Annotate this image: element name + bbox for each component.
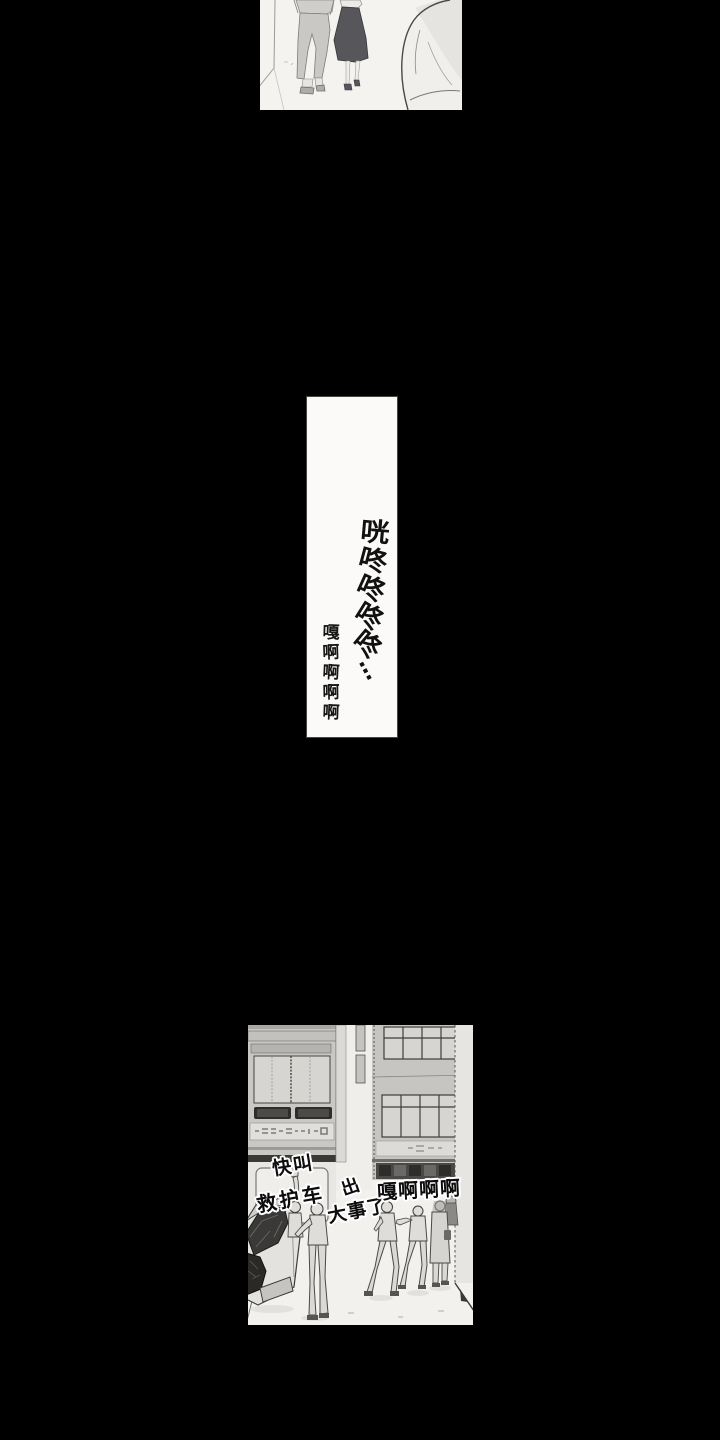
window-grid-upper <box>384 1027 460 1059</box>
scream-char: 啊 <box>316 662 345 683</box>
panel-sfx-crash: 咣 咚 咚 咚 咚 … 嘎 啊 啊 啊 啊 <box>306 396 398 738</box>
manga-reader-page[interactable]: 咣 咚 咚 咚 咚 … 嘎 啊 啊 啊 啊 <box>0 0 720 1440</box>
speech-scream: 嘎啊啊啊 <box>376 1172 461 1205</box>
scream-char: 啊 <box>317 703 346 724</box>
couple-walking-art <box>260 0 462 110</box>
panel-couple-walking <box>260 0 462 110</box>
scream-char: 啊 <box>317 643 346 664</box>
sfx-crash-text: 咣 咚 咚 咚 咚 … <box>353 519 397 679</box>
panel-street-accident: 快叫 救护车 出 大事了 嘎啊啊啊 <box>248 1025 473 1325</box>
window-grid-lower <box>382 1095 458 1137</box>
alley-gap <box>336 1025 372 1190</box>
scream-text: 嘎 啊 啊 啊 啊 <box>317 623 345 723</box>
scream-char: 嘎 <box>317 623 346 644</box>
scream-char: 啊 <box>317 683 345 703</box>
